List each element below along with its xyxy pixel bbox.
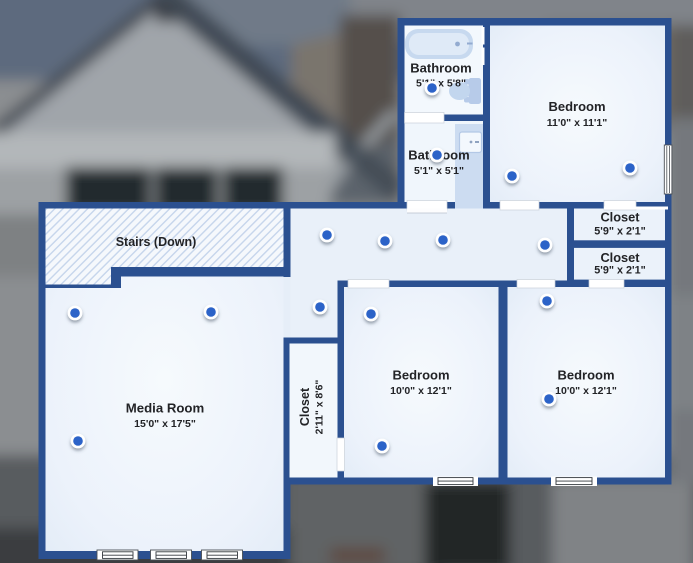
svg-text:2'11" x 8'6": 2'11" x 8'6" — [315, 380, 326, 435]
svg-text:11'0" x 11'1": 11'0" x 11'1" — [547, 117, 608, 129]
svg-text:Closet: Closet — [600, 250, 640, 265]
svg-text:5'9" x 2'1": 5'9" x 2'1" — [594, 226, 645, 238]
svg-text:Closet: Closet — [298, 387, 312, 426]
svg-text:Media Room: Media Room — [126, 401, 204, 416]
svg-text:10'0" x 12'1": 10'0" x 12'1" — [555, 385, 617, 397]
svg-text:5'1" x 5'8": 5'1" x 5'8" — [416, 78, 466, 90]
svg-text:5'9" x 2'1": 5'9" x 2'1" — [594, 265, 645, 277]
svg-text:Bathroom: Bathroom — [410, 61, 471, 76]
svg-text:10'0" x 12'1": 10'0" x 12'1" — [390, 385, 452, 397]
svg-text:Closet: Closet — [600, 210, 640, 225]
svg-text:Bedroom: Bedroom — [557, 368, 614, 383]
svg-text:15'0" x 17'5": 15'0" x 17'5" — [134, 418, 196, 430]
svg-text:5'1" x 5'1": 5'1" x 5'1" — [414, 165, 464, 177]
svg-text:Bedroom: Bedroom — [392, 368, 449, 383]
svg-text:Bedroom: Bedroom — [548, 99, 605, 114]
svg-text:Stairs (Down): Stairs (Down) — [116, 235, 197, 249]
